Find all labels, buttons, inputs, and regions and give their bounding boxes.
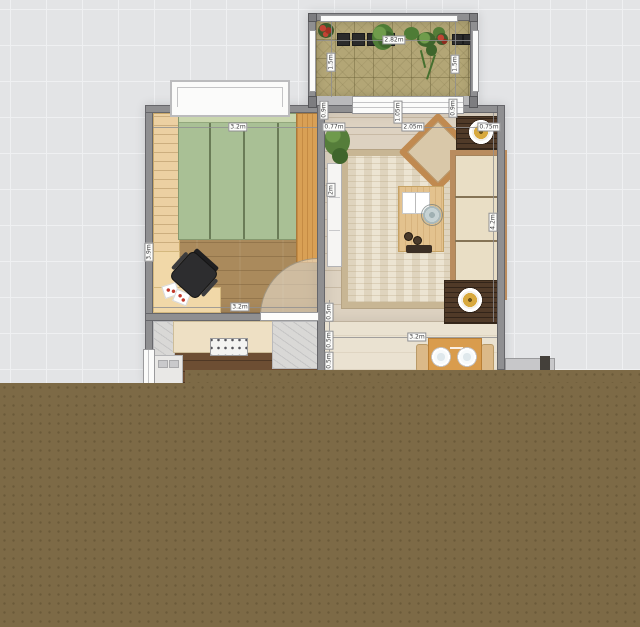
food-plate-bottom[interactable] [457,287,483,313]
sofa-cushion-seam [455,196,502,198]
window-inner-frame [177,87,178,107]
dinner-plate-right[interactable] [457,347,477,367]
glass-plate[interactable] [421,204,443,226]
cup[interactable] [404,232,413,241]
red-flower-pot-left[interactable] [318,23,334,38]
washing-machine[interactable] [153,355,183,385]
living-balcony-window[interactable] [352,96,464,114]
counter-marble-left[interactable] [153,321,175,357]
stove[interactable] [210,338,248,356]
planter-box[interactable] [337,33,350,46]
balcony-left-window[interactable] [309,30,316,92]
bed-seam [243,123,245,239]
floor-plan-canvas: 2.82m1.5m1.5m0.9m0.9m1.05m3.2m0.77m2.05m… [0,0,640,627]
window-mullion [148,350,149,384]
bed-seam [277,123,279,239]
console-divider [329,230,340,231]
balcony-bush-plant[interactable] [372,24,394,50]
sofa-cushion-seam [455,240,502,242]
bed[interactable] [178,113,298,240]
door-leaf[interactable] [260,312,319,321]
dresser[interactable] [296,113,318,263]
window-mullion [353,102,463,103]
serving-tray[interactable] [406,245,432,253]
wall-corner-post [469,96,478,108]
window-inner-frame [177,87,283,88]
unrendered-region-bottom [0,383,640,627]
window-mullion [353,107,463,108]
balcony-right-window[interactable] [472,30,479,92]
balcony-top-window[interactable] [320,15,458,22]
potted-plant-living [332,148,348,164]
middle-wall[interactable] [317,105,325,383]
bedroom-window[interactable] [170,80,290,117]
red-flower-pot-right[interactable] [436,33,448,45]
dinner-plate-left[interactable] [431,347,451,367]
dining-chair-right[interactable] [481,344,494,372]
wardrobe[interactable] [153,113,180,253]
kitchen-window[interactable] [143,349,155,385]
entry-door[interactable] [540,356,550,370]
bedroom-bottom-wall[interactable] [145,313,265,321]
window-inner-frame [282,87,283,107]
planter-box[interactable] [452,34,463,45]
wall-corner-post [308,96,317,108]
unrendered-region-step [185,370,640,384]
washer-control [158,360,168,368]
cup[interactable] [413,236,422,245]
tv-console[interactable] [327,163,342,267]
washer-control [169,360,179,368]
wall-corner-post [308,13,317,22]
bedroom-left-wall[interactable] [145,105,153,383]
planter-box[interactable] [352,33,365,46]
living-right-wall[interactable] [497,105,505,370]
food-plate-top[interactable] [468,119,494,145]
kitchen-island[interactable] [272,321,319,369]
bed-seam [209,123,211,239]
wall-corner-post [469,13,478,22]
console-divider [329,197,340,198]
